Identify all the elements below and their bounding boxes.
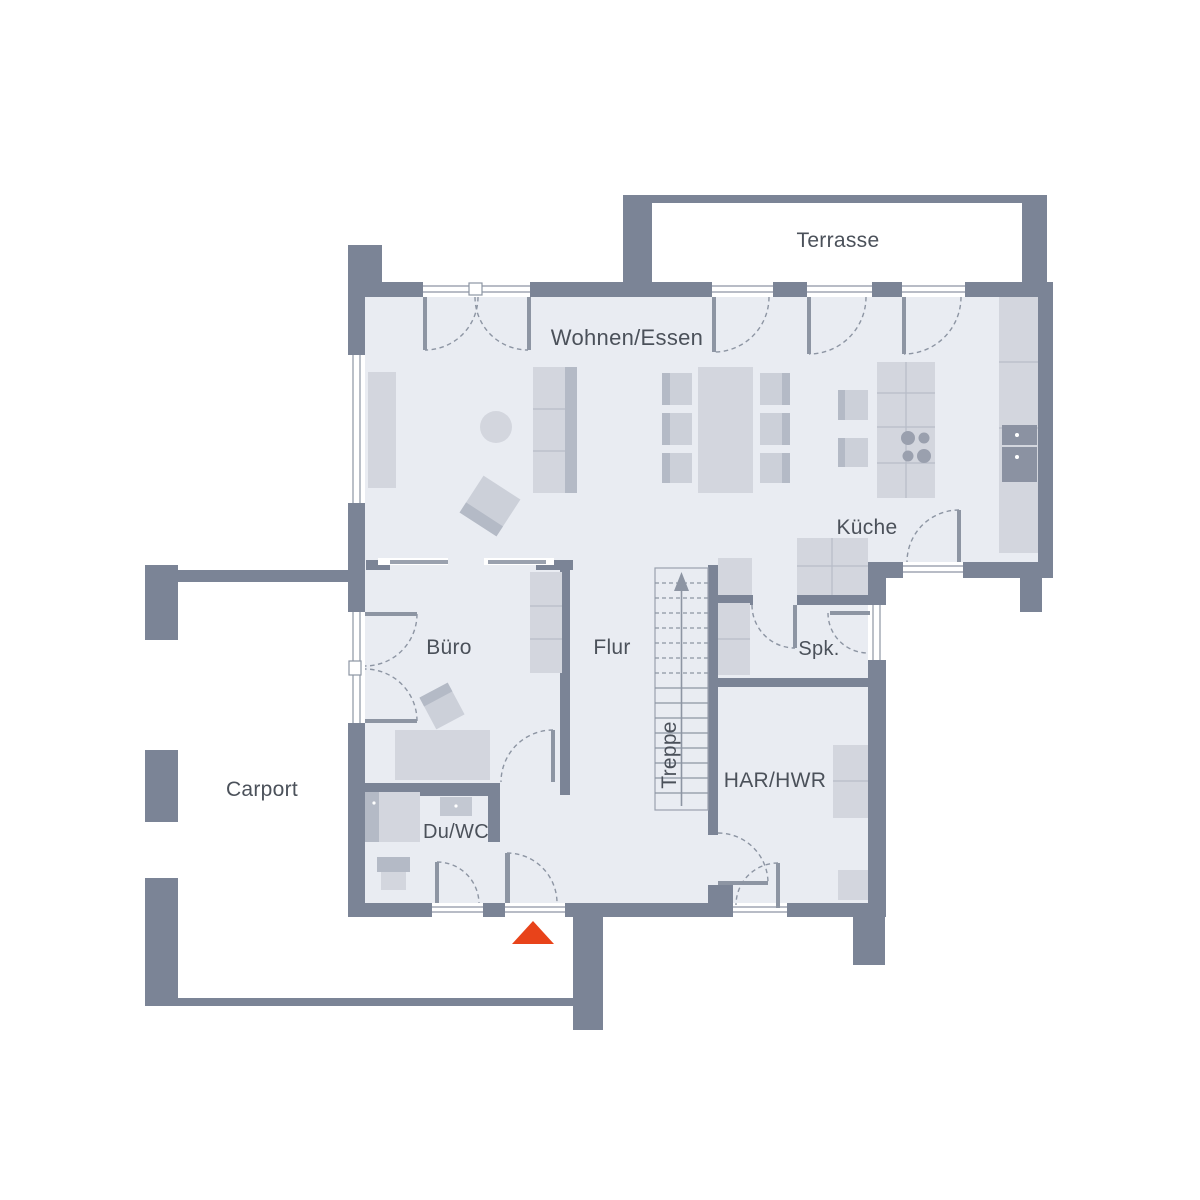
oven-icon bbox=[1002, 425, 1037, 482]
toilet bbox=[377, 857, 410, 890]
pantry-shelves bbox=[718, 603, 750, 675]
label-wohnen-essen: Wohnen/Essen bbox=[551, 325, 703, 350]
shower bbox=[365, 792, 420, 842]
label-carport: Carport bbox=[226, 778, 298, 801]
label-spk: Spk. bbox=[798, 638, 839, 660]
label-du-wc: Du/WC bbox=[423, 821, 489, 843]
dining-table bbox=[698, 367, 753, 493]
floor-plan: Terrasse Wohnen/Essen Küche Büro Flur Tr… bbox=[0, 0, 1200, 1200]
kitchen-island bbox=[877, 362, 935, 498]
sideboard bbox=[368, 372, 396, 488]
coffee-table bbox=[480, 411, 512, 443]
label-kueche: Küche bbox=[836, 516, 897, 539]
desk bbox=[395, 730, 490, 780]
sink bbox=[440, 797, 472, 816]
label-treppe: Treppe bbox=[658, 721, 681, 789]
label-flur: Flur bbox=[593, 636, 630, 659]
office-shelf bbox=[530, 572, 562, 673]
label-buero: Büro bbox=[426, 636, 472, 659]
label-har-hwr: HAR/HWR bbox=[724, 769, 826, 792]
sofa bbox=[533, 367, 577, 493]
floor-plan-canvas: Terrasse Wohnen/Essen Küche Büro Flur Tr… bbox=[0, 0, 1200, 1200]
label-terrasse: Terrasse bbox=[797, 229, 880, 252]
kitchen-counter bbox=[999, 297, 1038, 553]
entrance-marker-icon bbox=[512, 921, 554, 944]
window-living bbox=[348, 355, 365, 503]
wc-window bbox=[432, 903, 483, 917]
